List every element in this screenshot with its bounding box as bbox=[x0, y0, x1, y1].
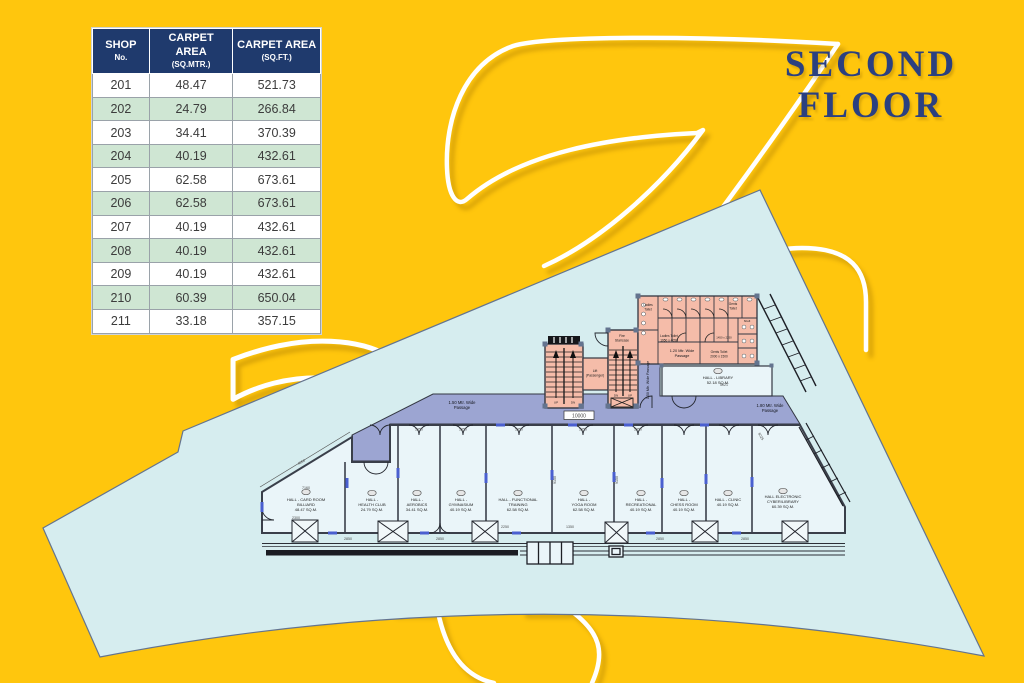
page-title: SECOND FLOOR bbox=[756, 44, 986, 127]
table-row: 20662.58673.61 bbox=[93, 192, 321, 216]
label-shaft-dim: 1450 x 2250 bbox=[716, 336, 732, 340]
svg-text:2000 x 1500: 2000 x 1500 bbox=[710, 355, 728, 359]
svg-text:40.19 SQ.M.: 40.19 SQ.M. bbox=[450, 507, 472, 512]
table-cell: 205 bbox=[93, 168, 150, 192]
label-ladies-toilet-dim: Ladies Toilet1950 x 4050 bbox=[660, 334, 678, 343]
svg-text:Ladies: Ladies bbox=[643, 303, 653, 307]
svg-text:2300: 2300 bbox=[292, 516, 300, 520]
svg-text:DN: DN bbox=[571, 401, 575, 405]
table-cell: 210 bbox=[93, 286, 150, 310]
svg-text:Lift: Lift bbox=[593, 369, 598, 373]
svg-text:1350: 1350 bbox=[566, 525, 574, 529]
page-title-line2: FLOOR bbox=[756, 85, 986, 126]
svg-text:9150: 9150 bbox=[615, 476, 619, 484]
table-row: 21133.18357.15 bbox=[93, 310, 321, 334]
svg-text:Staircase: Staircase bbox=[615, 339, 629, 343]
table-cell: 370.39 bbox=[233, 121, 321, 145]
svg-text:48.47 SQ.M.: 48.47 SQ.M. bbox=[295, 507, 317, 512]
svg-text:(Passenger): (Passenger) bbox=[586, 374, 604, 378]
svg-text:Toilet: Toilet bbox=[644, 308, 652, 312]
page-title-line1: SECOND bbox=[756, 44, 986, 85]
svg-text:7160: 7160 bbox=[302, 486, 310, 490]
table-cell: 60.39 bbox=[149, 286, 233, 310]
svg-text:2250: 2250 bbox=[501, 525, 509, 529]
svg-text:Gents: Gents bbox=[729, 302, 738, 306]
table-cell: 432.61 bbox=[233, 239, 321, 263]
svg-text:2850: 2850 bbox=[436, 537, 444, 541]
table-cell: 208 bbox=[93, 239, 150, 263]
header-carpet-sqmtr: CARPET AREA(SQ.MTR.) bbox=[149, 29, 233, 74]
table-cell: 650.04 bbox=[233, 286, 321, 310]
svg-text:40.19 SQ.M.: 40.19 SQ.M. bbox=[630, 507, 652, 512]
table-row: 20740.19432.61 bbox=[93, 215, 321, 239]
table-cell: 40.19 bbox=[149, 215, 233, 239]
svg-text:1950 x 4050: 1950 x 4050 bbox=[660, 339, 678, 343]
svg-text:5850: 5850 bbox=[579, 428, 587, 432]
svg-text:62.58 SQ.M.: 62.58 SQ.M. bbox=[507, 507, 529, 512]
svg-text:2850: 2850 bbox=[344, 537, 352, 541]
svg-text:24.79 SQ.M.: 24.79 SQ.M. bbox=[361, 507, 383, 512]
svg-text:1.20 Mtr. Wide: 1.20 Mtr. Wide bbox=[670, 349, 694, 353]
svg-text:2850: 2850 bbox=[741, 537, 749, 541]
table-row: 21060.39650.04 bbox=[93, 286, 321, 310]
table-cell: 673.61 bbox=[233, 192, 321, 216]
svg-text:Passage: Passage bbox=[675, 354, 690, 358]
area-table-body: 20148.47521.7320224.79266.8420334.41370.… bbox=[93, 74, 321, 334]
table-cell: 206 bbox=[93, 192, 150, 216]
table-cell: 432.61 bbox=[233, 215, 321, 239]
poster-canvas: ar bbox=[0, 0, 1024, 683]
table-cell: 266.84 bbox=[233, 97, 321, 121]
table-row: 20562.58673.61 bbox=[93, 168, 321, 192]
table-cell: 204 bbox=[93, 144, 150, 168]
svg-text:9150: 9150 bbox=[553, 476, 557, 484]
table-row: 20840.19432.61 bbox=[93, 239, 321, 263]
svg-text:Fire: Fire bbox=[619, 334, 625, 338]
table-row: 20224.79266.84 bbox=[93, 97, 321, 121]
label-gents-toilet: GentsToilet bbox=[729, 302, 738, 311]
table-cell: 202 bbox=[93, 97, 150, 121]
table-cell: 207 bbox=[93, 215, 150, 239]
table-cell: 62.58 bbox=[149, 192, 233, 216]
table-cell: 33.18 bbox=[149, 310, 233, 334]
svg-text:UP: UP bbox=[554, 401, 558, 405]
table-cell: 203 bbox=[93, 121, 150, 145]
svg-text:Toilet: Toilet bbox=[729, 307, 737, 311]
table-cell: 357.15 bbox=[233, 310, 321, 334]
svg-text:Passage: Passage bbox=[454, 405, 471, 410]
header-carpet-sqft: CARPET AREA(SQ.FT.) bbox=[233, 29, 321, 74]
table-cell: 209 bbox=[93, 262, 150, 286]
room-label-clinic: HALL - CLINIC40.19 SQ.M. bbox=[715, 497, 742, 507]
label-shaft: Shaft bbox=[744, 319, 751, 323]
label-ladies-toilet: LadiesToilet bbox=[643, 303, 653, 312]
svg-text:Passage: Passage bbox=[762, 408, 779, 413]
carpet-area-table: SHOPNo. CARPET AREA(SQ.MTR.) CARPET AREA… bbox=[92, 28, 321, 334]
svg-text:40.19 SQ.M.: 40.19 SQ.M. bbox=[673, 507, 695, 512]
table-cell: 48.47 bbox=[149, 74, 233, 98]
svg-text:34.41 SQ.M.: 34.41 SQ.M. bbox=[406, 507, 428, 512]
svg-text:Ladies Toilet: Ladies Toilet bbox=[660, 334, 678, 338]
svg-text:UP: UP bbox=[628, 394, 632, 398]
room-label-library: HALL - LIBRARY52.18 SQ.M. bbox=[703, 375, 734, 385]
table-cell: 432.61 bbox=[233, 262, 321, 286]
svg-text:52.18 SQ.M.: 52.18 SQ.M. bbox=[707, 380, 729, 385]
table-cell: 211 bbox=[93, 310, 150, 334]
table-cell: 201 bbox=[93, 74, 150, 98]
svg-text:5850: 5850 bbox=[459, 428, 467, 432]
table-row: 20148.47521.73 bbox=[93, 74, 321, 98]
svg-text:Gents Toilet: Gents Toilet bbox=[711, 350, 728, 354]
table-row: 20334.41370.39 bbox=[93, 121, 321, 145]
header-shop-no: SHOPNo. bbox=[93, 29, 150, 74]
table-cell: 673.61 bbox=[233, 168, 321, 192]
carpet-area-table-header: SHOPNo. CARPET AREA(SQ.MTR.) CARPET AREA… bbox=[93, 29, 321, 74]
svg-text:10000: 10000 bbox=[572, 414, 586, 420]
table-cell: 521.73 bbox=[233, 74, 321, 98]
svg-text:5850: 5850 bbox=[415, 428, 423, 432]
table-cell: 62.58 bbox=[149, 168, 233, 192]
table-row: 20940.19432.61 bbox=[93, 262, 321, 286]
table-cell: 40.19 bbox=[149, 239, 233, 263]
svg-text:5850: 5850 bbox=[634, 428, 642, 432]
label-passage-150-vertical: 1.50 Mtr. Wide Passage bbox=[646, 361, 650, 399]
svg-text:62.58 SQ.M.: 62.58 SQ.M. bbox=[573, 507, 595, 512]
svg-text:DN: DN bbox=[614, 394, 618, 398]
table-row: 20440.19432.61 bbox=[93, 144, 321, 168]
svg-text:40.19 SQ.M.: 40.19 SQ.M. bbox=[717, 502, 739, 507]
svg-text:60.39 SQ.M.: 60.39 SQ.M. bbox=[772, 504, 794, 509]
table-cell: 40.19 bbox=[149, 144, 233, 168]
table-cell: 24.79 bbox=[149, 97, 233, 121]
staircase-left bbox=[545, 336, 583, 408]
svg-text:5850: 5850 bbox=[515, 428, 523, 432]
svg-text:2850: 2850 bbox=[656, 537, 664, 541]
label-gents-toilet-dim: Gents Toilet2000 x 1500 bbox=[710, 350, 728, 359]
table-cell: 40.19 bbox=[149, 262, 233, 286]
table-cell: 432.61 bbox=[233, 144, 321, 168]
toilet-block bbox=[638, 296, 757, 364]
table-cell: 34.41 bbox=[149, 121, 233, 145]
